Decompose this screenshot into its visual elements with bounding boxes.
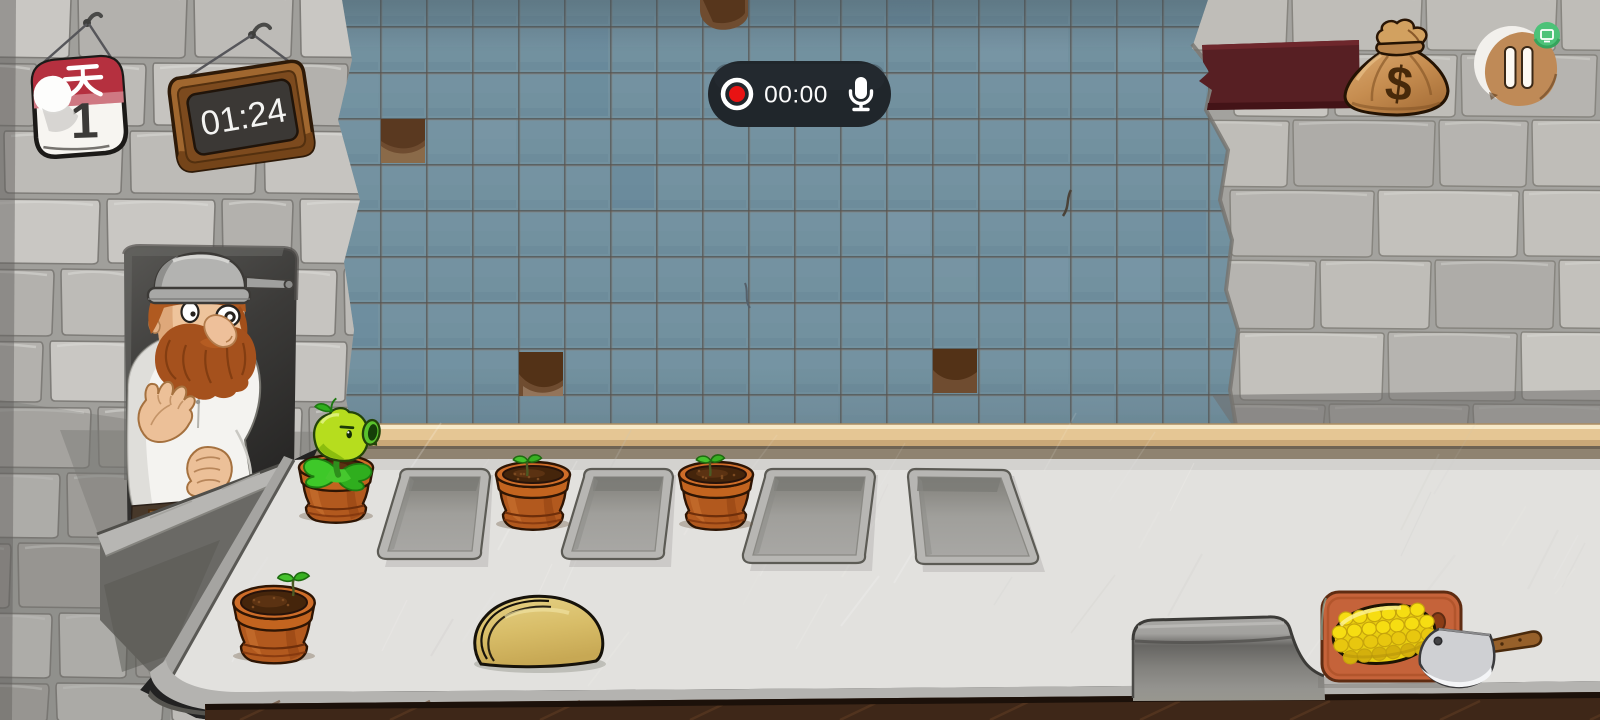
svg-text:00:00: 00:00 xyxy=(764,82,828,109)
